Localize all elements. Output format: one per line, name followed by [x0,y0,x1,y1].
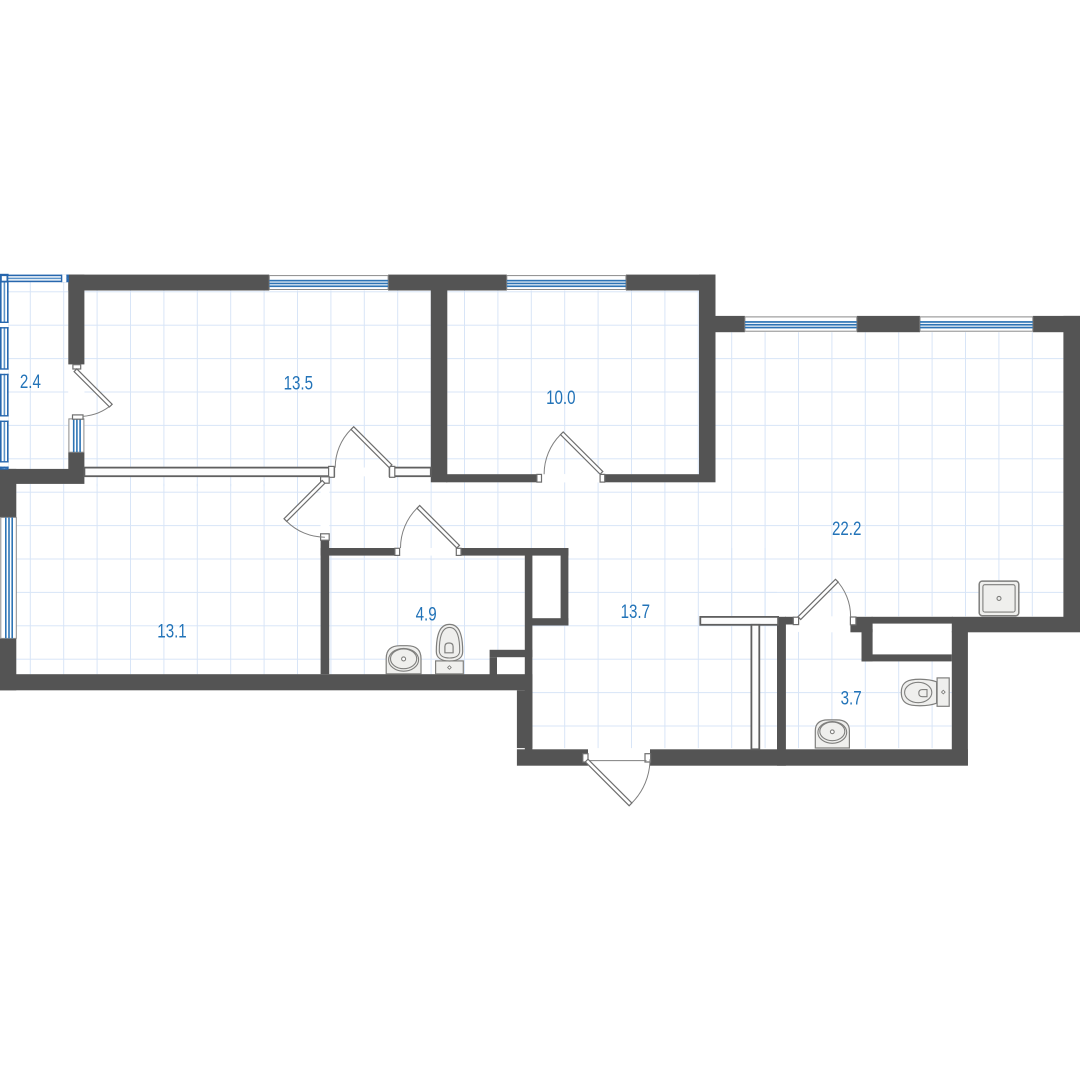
svg-text:13.5: 13.5 [284,372,313,394]
svg-text:4.9: 4.9 [416,603,437,625]
svg-text:10.0: 10.0 [546,386,575,408]
svg-text:3.7: 3.7 [841,687,862,709]
svg-text:2.4: 2.4 [20,370,41,392]
svg-text:13.1: 13.1 [157,620,186,642]
svg-text:22.2: 22.2 [832,517,861,539]
svg-text:13.7: 13.7 [621,600,650,622]
